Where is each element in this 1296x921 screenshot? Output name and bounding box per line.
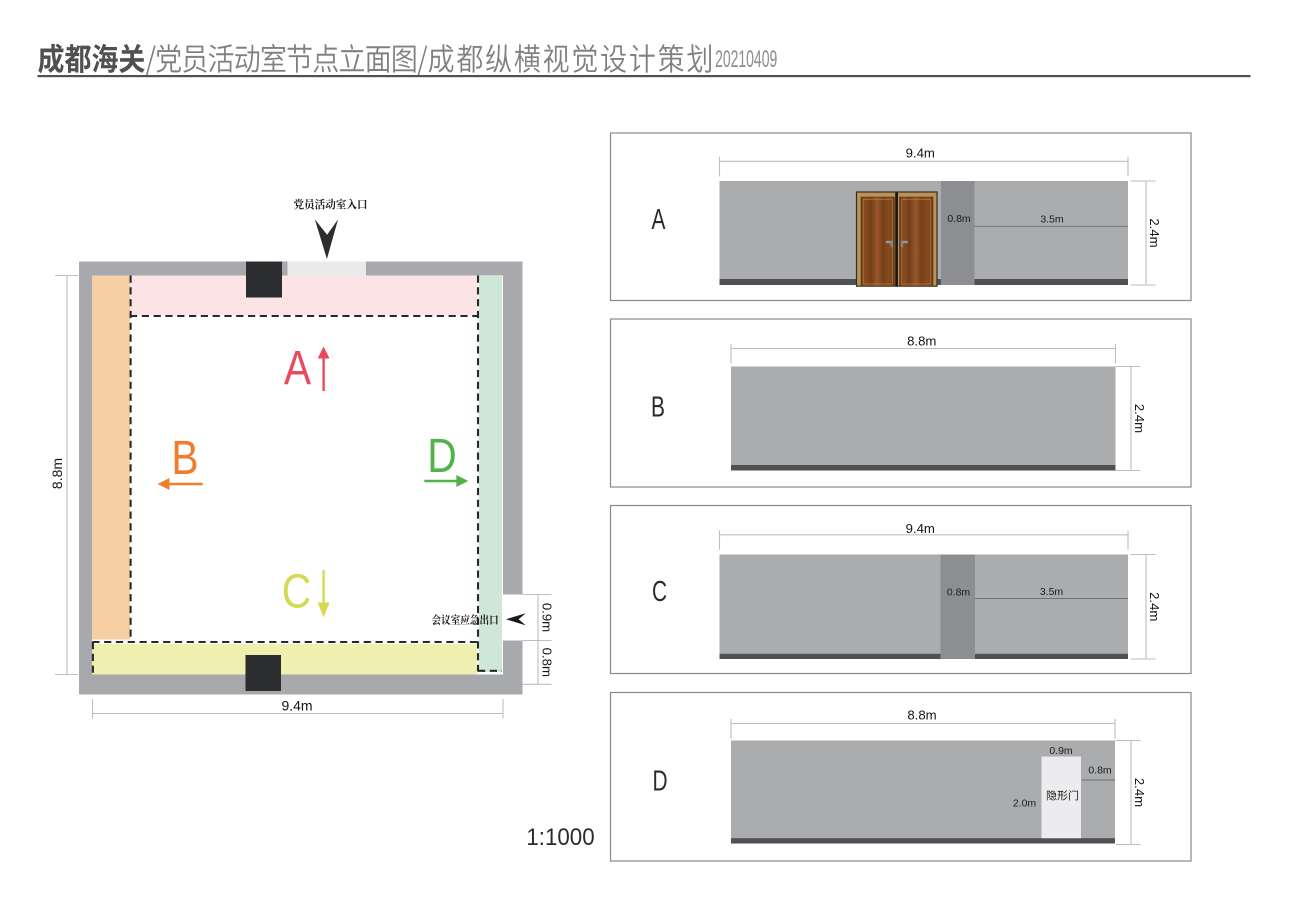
- svg-text:0.8m: 0.8m: [540, 648, 555, 677]
- svg-text:8.8m: 8.8m: [907, 708, 936, 723]
- svg-text:0.8m: 0.8m: [947, 587, 971, 599]
- svg-text:A: A: [652, 204, 666, 236]
- svg-text:0.8m: 0.8m: [1088, 765, 1112, 777]
- svg-text:B: B: [171, 432, 198, 485]
- svg-text:2.4m: 2.4m: [1132, 778, 1147, 807]
- svg-text:0.9m: 0.9m: [540, 603, 555, 632]
- svg-text:20210409: 20210409: [715, 46, 777, 73]
- svg-text:9.4m: 9.4m: [906, 145, 935, 160]
- svg-text:8.8m: 8.8m: [49, 458, 65, 489]
- svg-text:9.4m: 9.4m: [906, 521, 935, 536]
- svg-text:D: D: [652, 765, 667, 797]
- svg-text:2.4m: 2.4m: [1132, 404, 1147, 433]
- svg-text:8.8m: 8.8m: [907, 334, 936, 349]
- svg-text:9.4m: 9.4m: [281, 698, 312, 714]
- svg-text:0.8m: 0.8m: [947, 213, 971, 225]
- svg-text:A: A: [284, 342, 311, 395]
- svg-text:2.4m: 2.4m: [1147, 218, 1162, 247]
- svg-text:0.9m: 0.9m: [1049, 745, 1073, 757]
- svg-text:2.0m: 2.0m: [1013, 798, 1037, 810]
- svg-text:C: C: [652, 576, 667, 608]
- svg-text:3.5m: 3.5m: [1040, 214, 1064, 226]
- svg-text:B: B: [651, 391, 665, 423]
- svg-text:D: D: [427, 430, 456, 483]
- svg-text:C: C: [282, 565, 311, 618]
- svg-text:3.5m: 3.5m: [1040, 586, 1064, 598]
- svg-text:2.4m: 2.4m: [1147, 592, 1162, 621]
- svg-text:1:1000: 1:1000: [526, 823, 594, 850]
